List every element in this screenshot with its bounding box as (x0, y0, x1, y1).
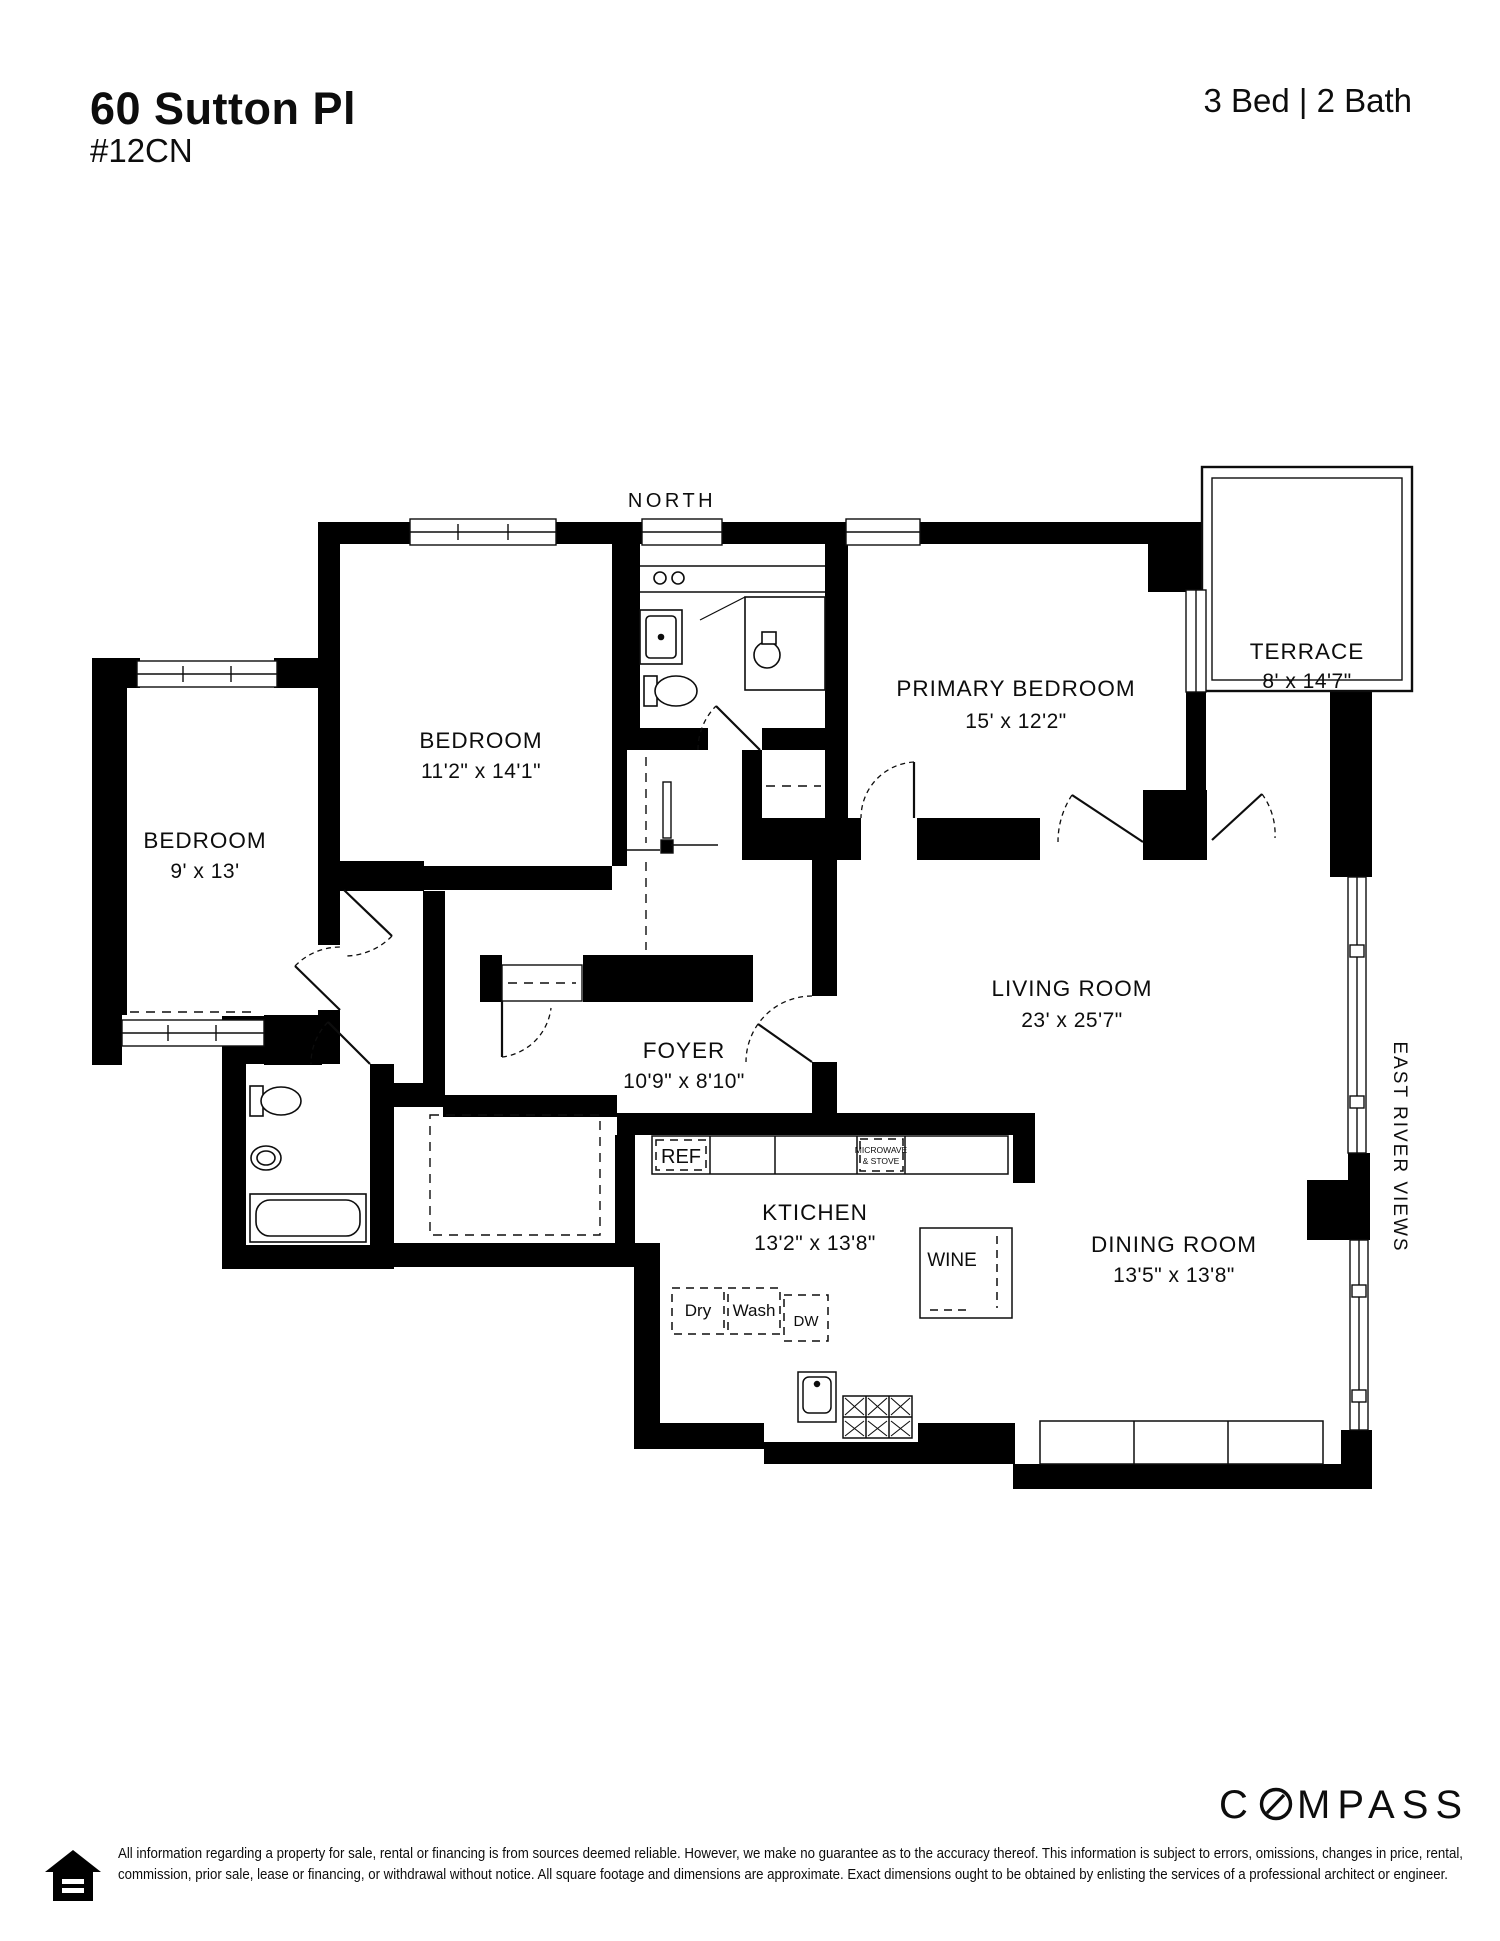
range-icon (843, 1396, 912, 1438)
equal-housing-icon (45, 1850, 101, 1901)
door (746, 996, 812, 1062)
room-label-living-room: LIVING ROOM (991, 976, 1152, 1001)
floorplan-svg: 60 Sutton Pl #12CN 3 Bed | 2 Bath (0, 0, 1500, 1941)
bathroom2-fixtures (250, 1086, 366, 1242)
microwave-label-1: MICROWAVE (855, 1145, 908, 1155)
window (1350, 1240, 1368, 1430)
window (1186, 590, 1206, 692)
window (122, 1020, 264, 1046)
kitchen-fixtures (652, 1136, 1012, 1438)
toilet-icon (250, 1086, 301, 1116)
window (1348, 877, 1366, 1153)
microwave-label-2: & STOVE (863, 1156, 900, 1166)
unit-number: #12CN (90, 132, 193, 169)
room-dims-dining-room: 13'5" x 13'8" (1113, 1264, 1235, 1287)
dining-cabinet (1040, 1421, 1323, 1464)
page-title: 60 Sutton Pl (90, 83, 356, 134)
east-river-views-label: EAST RIVER VIEWS (1389, 1041, 1410, 1252)
dry-label: Dry (685, 1301, 712, 1320)
room-dims-living-room: 23' x 25'7" (1021, 1009, 1123, 1032)
window (846, 519, 920, 545)
north-label: NORTH (628, 490, 716, 512)
window (410, 519, 556, 545)
bed-bath-count: 3 Bed | 2 Bath (1203, 82, 1412, 119)
wine-cabinet-icon (920, 1228, 1012, 1318)
room-label-dining-room: DINING ROOM (1091, 1232, 1257, 1257)
room-label-foyer: FOYER (643, 1038, 726, 1063)
disclaimer-line-1: All information regarding a property for… (118, 1846, 1463, 1862)
compass-logo-c: C (1219, 1783, 1255, 1827)
room-label-kitchen: KTICHEN (762, 1200, 868, 1225)
dw-label: DW (794, 1313, 820, 1330)
room-dims-bedroom-2: 11'2" x 14'1" (421, 760, 541, 783)
door (502, 1001, 551, 1057)
toilet-icon (644, 676, 697, 706)
door (344, 890, 392, 956)
room-label-primary-bedroom: PRIMARY BEDROOM (896, 676, 1135, 701)
door (1212, 794, 1275, 840)
door (295, 947, 340, 1010)
compass-needle-icon (1267, 1795, 1284, 1813)
header: 60 Sutton Pl #12CN 3 Bed | 2 Bath (90, 82, 1412, 169)
room-label-terrace: TERRACE (1250, 639, 1365, 664)
room-dims-bedroom-3: 9' x 13' (170, 860, 239, 883)
room-label-bedroom-2: BEDROOM (419, 728, 542, 753)
sink-icon (798, 1372, 836, 1422)
compass-logo-rest: MPASS (1297, 1783, 1469, 1827)
disclaimer-line-2: commission, prior sale, lease or financi… (118, 1867, 1448, 1883)
sink-icon (640, 610, 682, 664)
sink-icon (251, 1146, 281, 1170)
room-dims-primary-bedroom: 15' x 12'2" (965, 710, 1067, 733)
faucet-icon (654, 572, 666, 584)
floorplan-page: 60 Sutton Pl #12CN 3 Bed | 2 Bath (0, 0, 1500, 1941)
faucet-icon (672, 572, 684, 584)
bathtub-icon (250, 1194, 366, 1242)
microwave-stove-icon (860, 1139, 903, 1171)
door (861, 762, 914, 818)
room-dims-foyer: 10'9" x 8'10" (623, 1070, 745, 1093)
ref-label: REF (661, 1146, 701, 1168)
shower-icon (700, 597, 825, 690)
walls (92, 522, 1372, 1489)
wine-label: WINE (927, 1250, 977, 1271)
room-dims-kitchen: 13'2" x 13'8" (754, 1232, 876, 1255)
wash-label: Wash (733, 1301, 776, 1320)
room-dims-terrace: 8' x 14'7" (1262, 670, 1351, 693)
window (137, 661, 277, 687)
door (1058, 795, 1143, 842)
compass-logo: C MPASS (1219, 1783, 1469, 1827)
footer: C MPASS All information regarding a prop… (45, 1783, 1469, 1901)
room-label-bedroom-3: BEDROOM (143, 828, 266, 853)
window (642, 519, 722, 545)
bathroom1-fixtures (640, 566, 825, 706)
